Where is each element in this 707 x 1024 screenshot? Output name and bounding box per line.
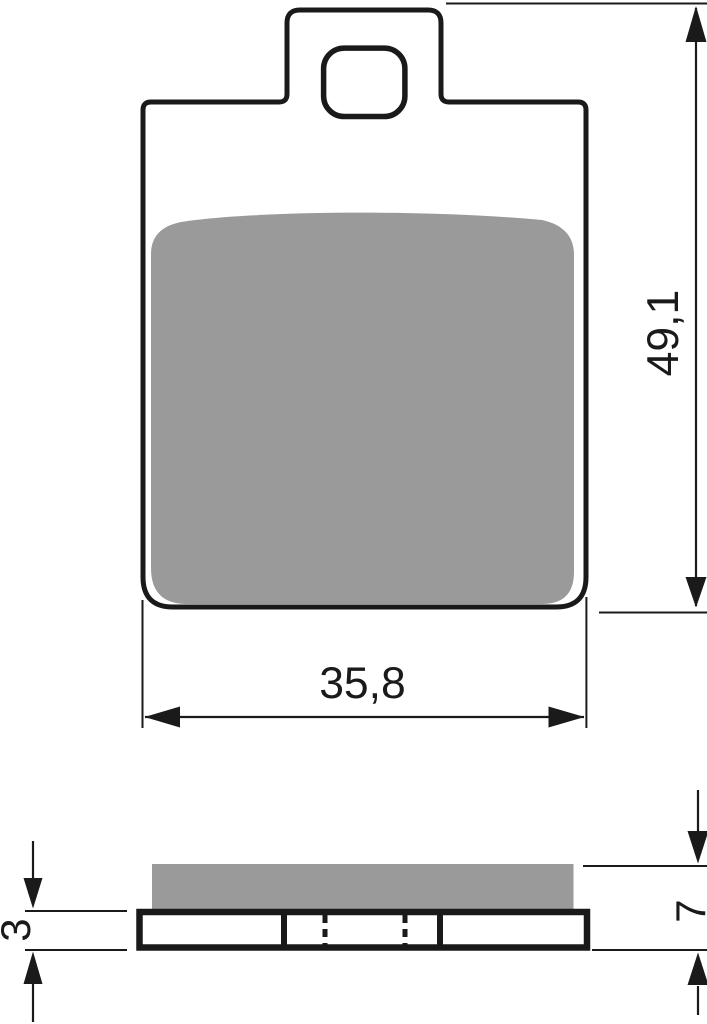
svg-text:49,1: 49,1 [639,290,688,377]
svg-text:35,8: 35,8 [319,659,406,708]
svg-text:3: 3 [0,918,39,941]
svg-text:7: 7 [667,899,707,922]
